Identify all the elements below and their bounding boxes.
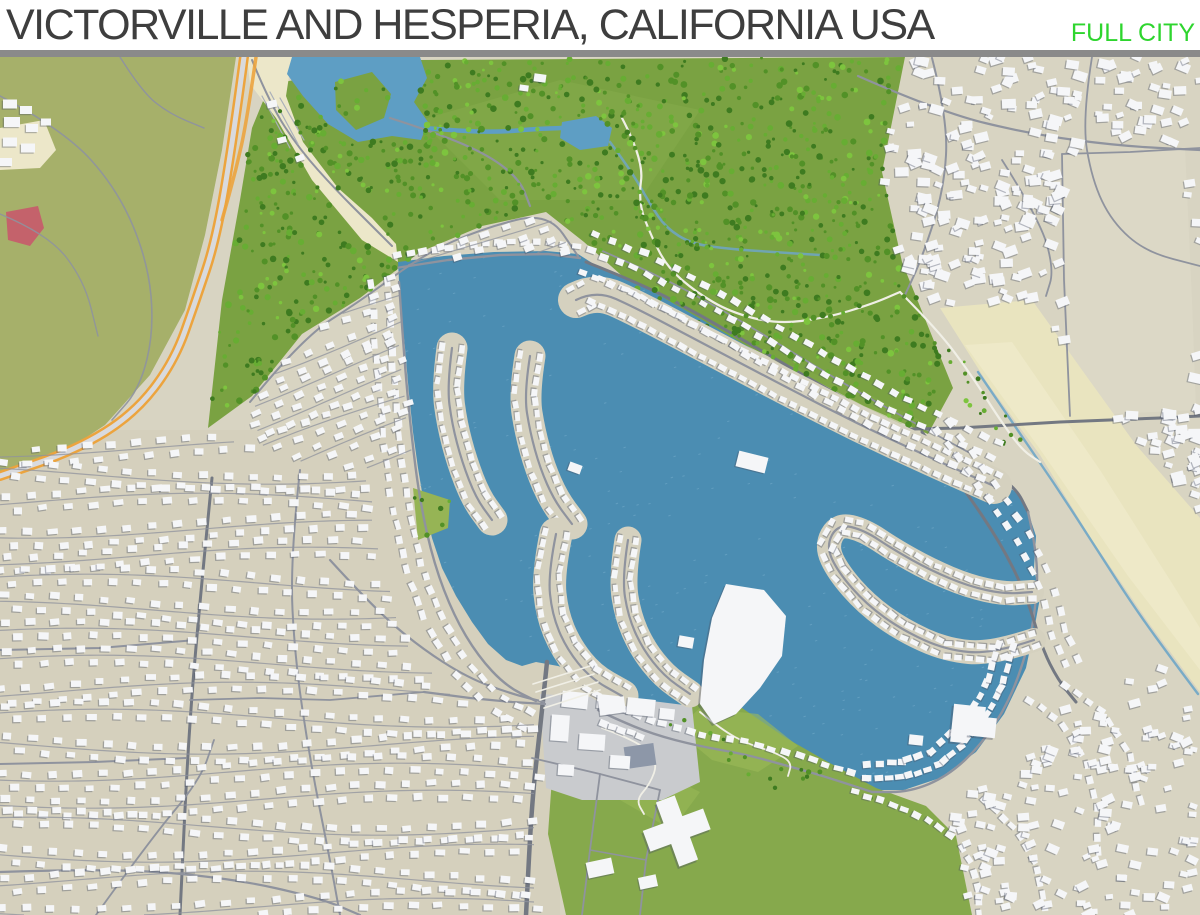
page: VICTORVILLE AND HESPERIA, CALIFORNIA USA… <box>0 0 1200 915</box>
header-divider <box>0 50 1200 57</box>
map-3d-render <box>0 57 1200 915</box>
page-title: VICTORVILLE AND HESPERIA, CALIFORNIA USA <box>6 1 934 50</box>
map-canvas <box>0 57 1200 915</box>
full-city-badge: FULL CITY <box>1071 19 1195 48</box>
page-header: VICTORVILLE AND HESPERIA, CALIFORNIA USA… <box>0 0 1200 50</box>
